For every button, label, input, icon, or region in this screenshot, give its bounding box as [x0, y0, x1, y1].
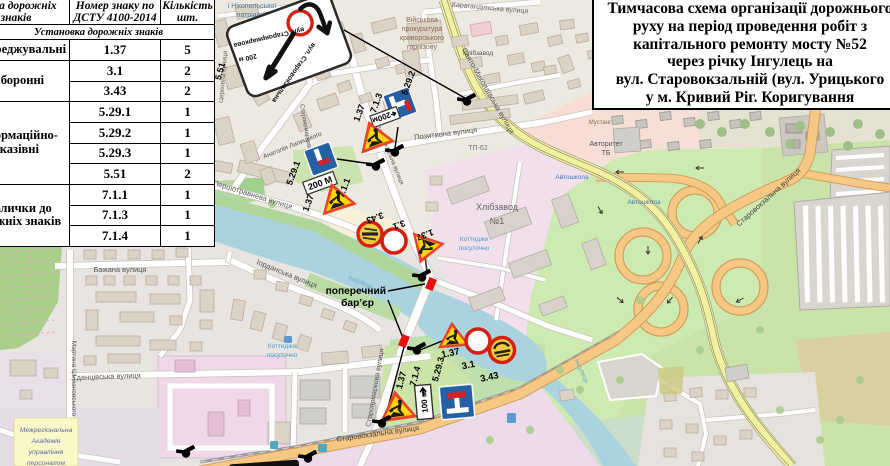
- svg-text:№1: №1: [490, 216, 505, 226]
- svg-text:персоналом: персоналом: [27, 460, 66, 466]
- svg-text:Академія: Академія: [31, 437, 61, 445]
- svg-text:Автошкола: Автошкола: [555, 174, 589, 181]
- svg-text:гарнізону: гарнізону: [407, 43, 437, 51]
- svg-text:Коттеджи: Коттеджи: [460, 236, 489, 243]
- svg-text:Хлібзавод: Хлібзавод: [476, 202, 519, 212]
- svg-text:Авторитет: Авторитет: [589, 141, 623, 148]
- svg-text:Мустанг: Мустанг: [589, 120, 612, 126]
- svg-text:криворізького: криворізького: [400, 34, 444, 42]
- svg-text:і Нікопольської: і Нікопольської: [228, 2, 277, 10]
- svg-text:посуточно: посуточно: [459, 245, 490, 252]
- svg-text:ТБ: ТБ: [602, 150, 611, 157]
- svg-text:Військова: Військова: [406, 16, 438, 24]
- svg-text:Межрегіональна: Межрегіональна: [20, 426, 73, 434]
- svg-text:100 м: 100 м: [419, 391, 430, 413]
- svg-text:Автошкола: Автошкола: [627, 199, 661, 206]
- svg-text:Коттеджи: Коттеджи: [268, 343, 297, 350]
- svg-text:поперечний: поперечний: [326, 286, 386, 297]
- svg-text:ТП-62: ТП-62: [468, 145, 488, 152]
- svg-text:Бажана вулиця: Бажана вулиця: [93, 265, 146, 274]
- svg-text:бар’єр: бар’єр: [341, 297, 374, 309]
- svg-text:прокуратура: прокуратура: [402, 26, 442, 33]
- svg-text:управління: управління: [28, 448, 64, 456]
- svg-text:посуточно: посуточно: [267, 352, 298, 359]
